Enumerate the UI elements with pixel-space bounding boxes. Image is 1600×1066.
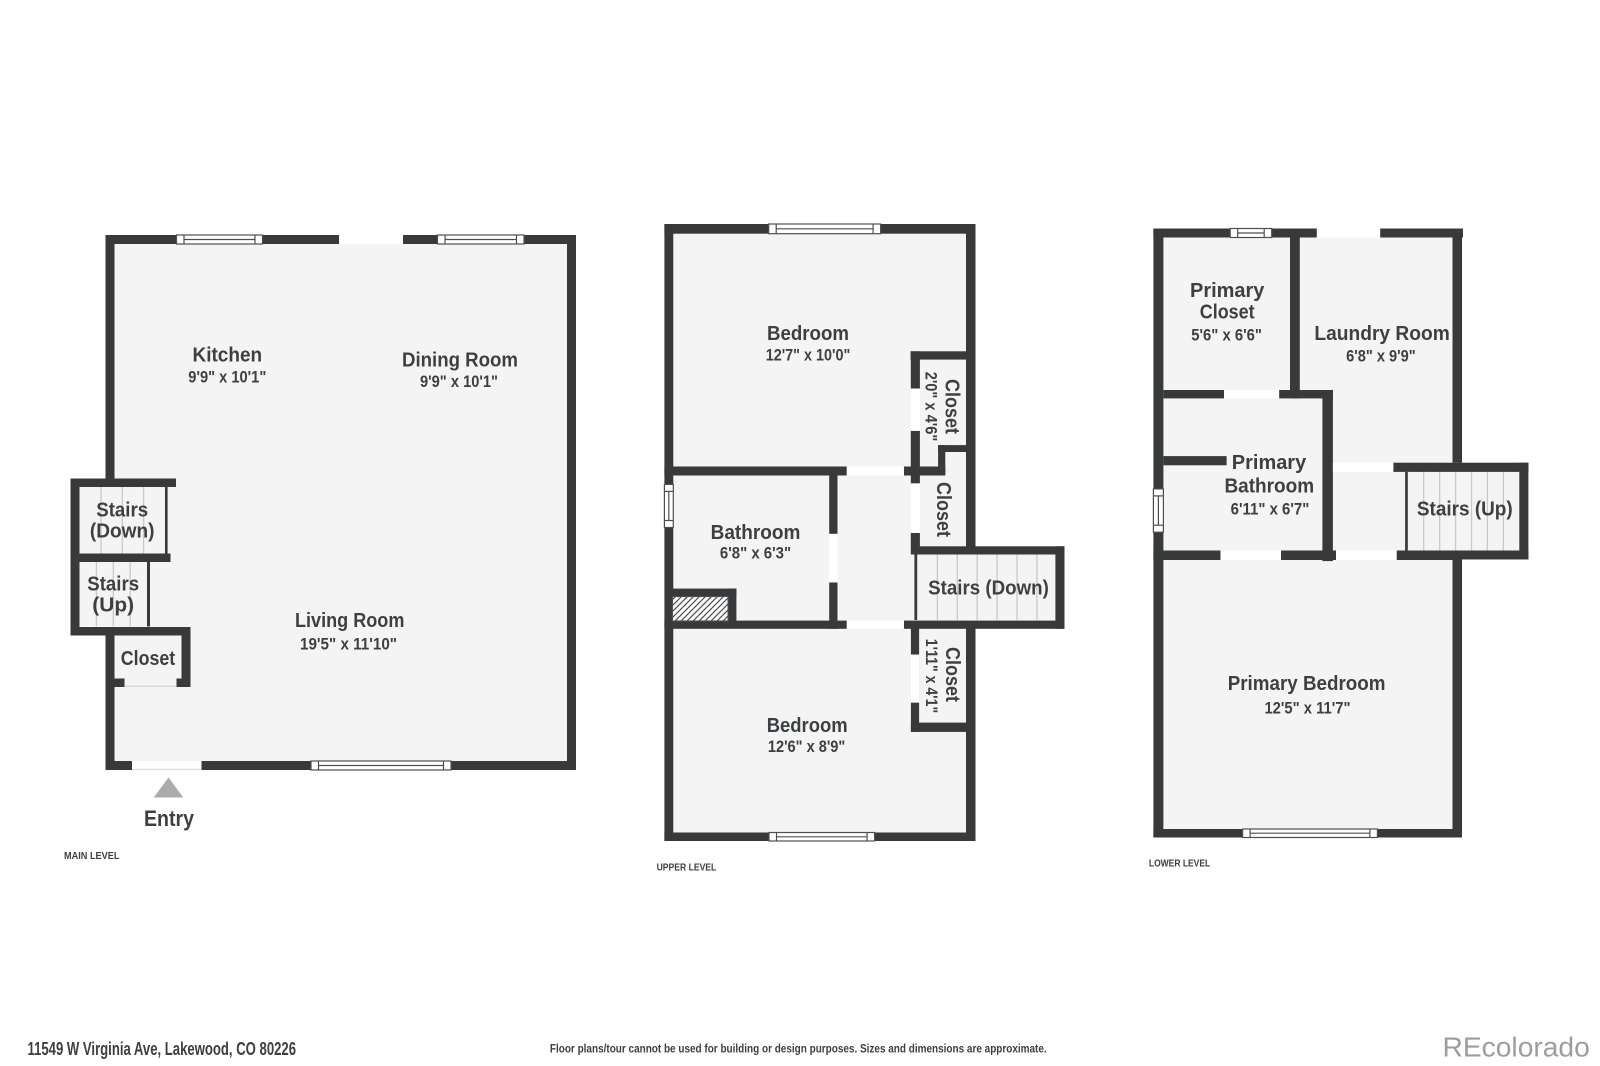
svg-text:9'9" x 10'1": 9'9" x 10'1" [188,368,266,387]
svg-text:Stairs: Stairs [96,499,148,521]
svg-text:12'7" x 10'0": 12'7" x 10'0" [766,346,851,365]
svg-text:Bedroom: Bedroom [767,323,849,345]
svg-text:(Down): (Down) [90,521,155,543]
svg-text:1'11" x 4'1": 1'11" x 4'1" [922,639,941,713]
svg-text:Closet: Closet [932,482,954,537]
svg-text:Dining Room: Dining Room [402,350,518,372]
svg-text:Closet: Closet [941,647,963,702]
svg-text:12'5" x 11'7": 12'5" x 11'7" [1264,699,1350,718]
svg-text:LOWER LEVEL: LOWER LEVEL [1149,858,1211,870]
svg-text:Kitchen: Kitchen [193,345,263,367]
svg-text:REcolorado: REcolorado [1443,1030,1590,1062]
svg-text:Stairs (Up): Stairs (Up) [1417,498,1513,520]
svg-text:19'5" x 11'10": 19'5" x 11'10" [300,635,397,654]
svg-text:Primary: Primary [1190,280,1265,302]
svg-text:Stairs (Down): Stairs (Down) [928,578,1049,600]
svg-text:Closet: Closet [1200,302,1255,324]
svg-text:Living Room: Living Room [295,610,404,632]
svg-text:12'6" x 8'9": 12'6" x 8'9" [768,737,845,756]
svg-text:Bathroom: Bathroom [711,522,801,544]
svg-text:11549 W Virginia Ave, Lakewood: 11549 W Virginia Ave, Lakewood, CO 80226 [28,1039,297,1059]
svg-text:Floor plans/tour cannot be use: Floor plans/tour cannot be used for buil… [550,1044,1047,1056]
svg-text:6'8" x 9'9": 6'8" x 9'9" [1346,347,1416,366]
svg-text:Laundry Room: Laundry Room [1314,323,1449,345]
svg-text:Primary: Primary [1232,452,1307,474]
svg-text:Stairs: Stairs [87,574,139,596]
svg-text:Entry: Entry [144,806,195,831]
svg-text:Primary Bedroom: Primary Bedroom [1228,673,1386,695]
svg-text:2'0" x 4'6": 2'0" x 4'6" [922,372,941,442]
svg-text:(Up): (Up) [92,595,134,617]
svg-text:6'11" x 6'7": 6'11" x 6'7" [1231,500,1310,519]
svg-text:Closet: Closet [121,648,176,670]
svg-text:UPPER LEVEL: UPPER LEVEL [657,862,717,874]
svg-text:9'9" x 10'1": 9'9" x 10'1" [420,372,498,391]
svg-text:Bathroom: Bathroom [1224,476,1314,498]
svg-text:Closet: Closet [941,379,963,434]
svg-text:6'8" x 6'3": 6'8" x 6'3" [720,544,791,563]
svg-text:5'6" x 6'6": 5'6" x 6'6" [1191,326,1262,345]
svg-text:MAIN LEVEL: MAIN LEVEL [64,850,120,862]
svg-text:Bedroom: Bedroom [767,715,848,737]
